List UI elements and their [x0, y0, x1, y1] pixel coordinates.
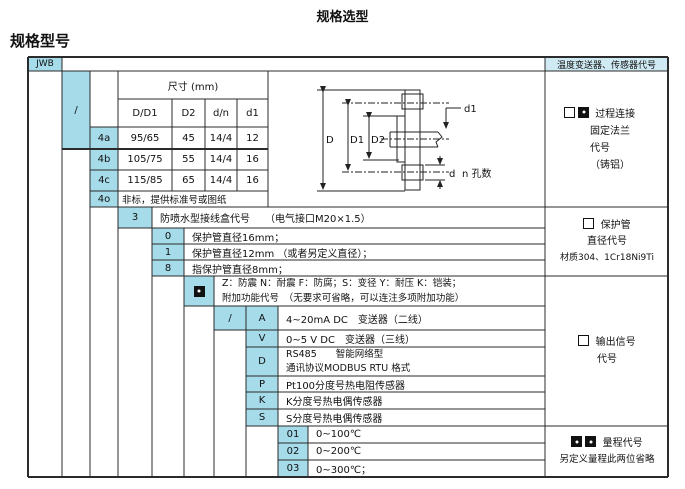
device-code-band-label: 温度变送器、传感器代号 — [545, 57, 668, 71]
range-code: 03 — [278, 460, 308, 477]
spec-sheet-page: 规格选型 规格型号 — [0, 0, 685, 489]
panel-range: 量程代号 另定义量程此两位省略 — [546, 427, 668, 477]
tube-label: 保护管直径12mm （或者另定义直径）； — [184, 244, 545, 260]
panel-process-line3: 代号 — [590, 140, 668, 157]
size-value: 95/65 — [118, 127, 172, 149]
panel-process-line2: 固定法兰 — [590, 123, 668, 140]
dim-col-d1: d1 — [237, 99, 268, 127]
diagram-label-d1: d1 — [464, 104, 477, 115]
output-label: 4~20mA DC 变送器（二线） — [278, 306, 545, 330]
output-slash-cell: / — [214, 306, 246, 330]
panel-signal-title: 输出信号 — [596, 337, 636, 348]
junction-box-label: 防喷水型接线盒代号 （电气接口M20×1.5） — [152, 207, 545, 228]
dim-col-d2: D2 — [172, 99, 205, 127]
diagram-label-D: D — [326, 135, 334, 146]
code-position-open-icon — [578, 335, 589, 346]
output-label-line2: 通讯协议MODBUS RTU 格式 — [286, 362, 545, 376]
size-value: 16 — [237, 149, 268, 170]
panel-tube-line1: 保护管 — [583, 218, 630, 234]
panel-process-line4: （铸铝） — [590, 157, 668, 174]
diagram-label-D2: D2 — [371, 135, 385, 146]
panel-signal-line2: 代号 — [597, 351, 617, 368]
code-position-filled-icon — [578, 107, 589, 118]
output-code: A — [246, 306, 278, 330]
tube-code: 1 — [152, 244, 184, 260]
range-code: 01 — [278, 426, 308, 443]
output-code: D — [246, 347, 278, 376]
size-value: 55 — [172, 149, 205, 170]
panel-process-line1: 过程连接 — [564, 106, 668, 123]
output-code: V — [246, 330, 278, 347]
panel-protection-tube: 保护管 直径代号 材质304、1Cr18Ni9Ti — [546, 208, 668, 276]
tube-code: 0 — [152, 228, 184, 244]
output-label: Pt100分度号热电阻传感器 — [278, 376, 545, 392]
extra-func-line1: Z：防震 N：耐震 F：防腐；S：变径 Y：耐压 K：铠装； — [222, 276, 545, 291]
size-value: 115/85 — [118, 170, 172, 191]
panel-range-title: 量程代号 — [603, 438, 643, 449]
diagram-label-D1: D1 — [350, 135, 364, 146]
output-label-line1: RS485 智能网络型 — [286, 348, 545, 362]
output-code: P — [246, 376, 278, 392]
size-value: 12 — [237, 127, 268, 149]
range-label: 0~100℃ — [308, 426, 545, 443]
size-value: 14/4 — [205, 149, 237, 170]
dim-col-d-n: d/n — [205, 99, 237, 127]
range-code: 02 — [278, 443, 308, 460]
size-value: 45 — [172, 127, 205, 149]
panel-tube-line3: 材质304、1Cr18Ni9Ti — [560, 250, 654, 266]
panel-process-connection: 过程连接 固定法兰 代号 （铸铝） — [546, 72, 668, 207]
panel-signal-line1: 输出信号 — [578, 334, 635, 351]
panel-range-line1: 量程代号 — [571, 436, 642, 452]
output-code: S — [246, 409, 278, 426]
flange-diagram: D D1 D2 d1 d n 孔数 — [269, 72, 544, 206]
panel-range-line2: 另定义量程此两位省略 — [559, 452, 654, 468]
tube-label: 保护管直径16mm； — [184, 228, 545, 244]
code-position-open-icon — [564, 107, 575, 118]
panel-process-title: 过程连接 — [595, 109, 635, 120]
panel-tube-title: 保护管 — [601, 220, 631, 231]
flange-slash-cell: / — [62, 71, 90, 149]
code-position-open-icon — [583, 218, 594, 229]
size-row-note: 非标，提供标准号或图纸 — [118, 191, 268, 207]
extra-func-code-cell — [184, 276, 214, 306]
output-label-rs485: RS485 智能网络型 通讯协议MODBUS RTU 格式 — [278, 347, 545, 376]
size-row-code: 4o — [90, 191, 118, 207]
output-label: K分度号热电偶传感器 — [278, 392, 545, 409]
size-value: 65 — [172, 170, 205, 191]
tube-label: 指保护管直径8mm； — [184, 260, 545, 276]
code-position-filled-icon — [194, 286, 205, 297]
extra-func-line2: 附加功能代号 （无要求可省略，可以连注多项附加功能） — [222, 291, 545, 306]
diagram-label-n-holes: n 孔数 — [462, 167, 492, 180]
diagram-label-d: d — [449, 169, 455, 180]
size-value: 16 — [237, 170, 268, 191]
size-value: 105/75 — [118, 149, 172, 170]
size-row-code: 4b — [90, 149, 118, 170]
size-value: 14/4 — [205, 127, 237, 149]
range-label: 0~200℃ — [308, 443, 545, 460]
size-table-title: 尺寸 (mm) — [118, 71, 268, 99]
range-label: 0~300℃； — [308, 460, 545, 477]
output-label: S分度号热电偶传感器 — [278, 409, 545, 426]
size-value: 14/4 — [205, 170, 237, 191]
model-prefix: JWB — [28, 57, 62, 71]
tube-code: 8 — [152, 260, 184, 276]
extra-func-label: Z：防震 N：耐震 F：防腐；S：变径 Y：耐压 K：铠装； 附加功能代号 （无… — [214, 276, 545, 306]
size-row-code: 4a — [90, 127, 118, 149]
output-code: K — [246, 392, 278, 409]
size-row-code: 4c — [90, 170, 118, 191]
code-position-filled-icon — [585, 436, 596, 447]
dim-col-d-d1: D/D1 — [118, 99, 172, 127]
output-label: 0~5 V DC 变送器（三线） — [278, 330, 545, 347]
junction-box-code: 3 — [118, 207, 152, 228]
panel-tube-line2: 直径代号 — [587, 234, 627, 250]
panel-output-signal: 输出信号 代号 — [546, 277, 668, 425]
code-position-filled-icon — [571, 436, 582, 447]
